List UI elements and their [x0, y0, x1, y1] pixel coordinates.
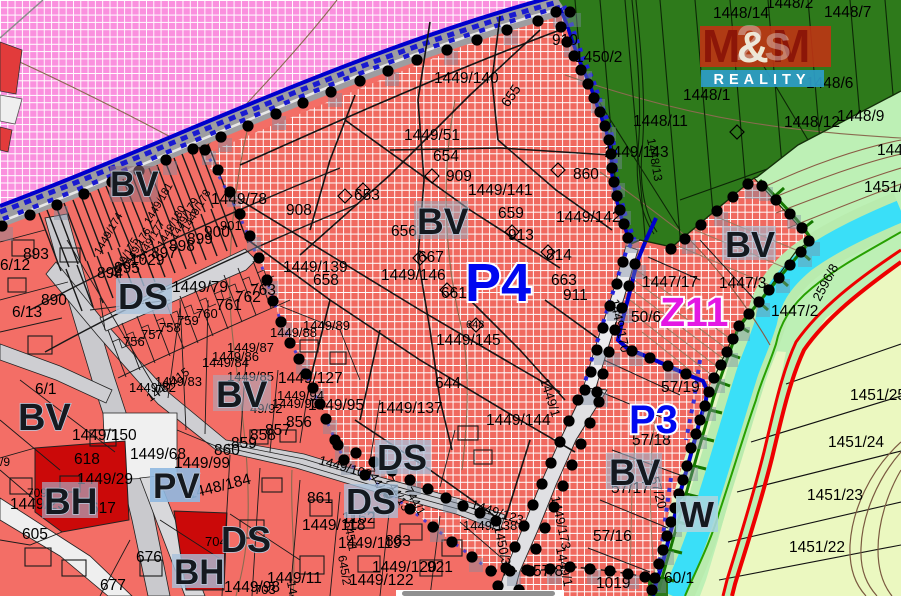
svg-text:BV: BV	[216, 374, 268, 415]
svg-text:6/13: 6/13	[12, 304, 42, 321]
svg-text:57/16: 57/16	[593, 528, 632, 545]
svg-text:756: 756	[123, 334, 145, 349]
svg-text:Z11: Z11	[660, 289, 728, 335]
svg-text:1450/2: 1450/2	[575, 49, 622, 66]
svg-text:1449/141: 1449/141	[468, 182, 533, 199]
svg-text:P3: P3	[629, 398, 678, 442]
svg-text:1449/145: 1449/145	[436, 332, 501, 349]
svg-text:BH: BH	[174, 553, 225, 592]
svg-text:1447: 1447	[877, 142, 901, 159]
svg-text:860: 860	[573, 166, 599, 183]
svg-text:656: 656	[391, 223, 417, 240]
svg-text:PV: PV	[153, 467, 200, 506]
svg-text:1448/2: 1448/2	[766, 0, 813, 12]
svg-text:1451/25: 1451/25	[850, 387, 901, 404]
svg-text:861: 861	[307, 490, 333, 507]
svg-text:760: 760	[196, 306, 218, 321]
svg-text:BV: BV	[110, 165, 159, 204]
svg-text:1449/122: 1449/122	[349, 572, 414, 589]
svg-text:658: 658	[313, 272, 339, 289]
svg-text:BH: BH	[44, 481, 97, 522]
svg-text:1449/140: 1449/140	[434, 70, 499, 87]
svg-text:1449/150: 1449/150	[72, 427, 137, 444]
svg-text:1019: 1019	[596, 575, 630, 592]
svg-text:667: 667	[418, 249, 444, 266]
svg-text:910: 910	[552, 32, 578, 49]
svg-text:6/1: 6/1	[35, 381, 57, 398]
svg-text:BV: BV	[18, 397, 71, 439]
svg-text:DS: DS	[377, 437, 427, 478]
svg-text:DS: DS	[346, 481, 396, 522]
svg-text:677: 677	[100, 577, 126, 594]
svg-text:653: 653	[354, 187, 380, 204]
svg-text:921: 921	[427, 559, 453, 576]
svg-text:M: M	[702, 20, 740, 72]
svg-text:1451/2: 1451/2	[864, 179, 901, 196]
svg-text:1449/138: 1449/138	[463, 518, 517, 533]
svg-text:P4: P4	[465, 253, 531, 313]
svg-text:1449/127: 1449/127	[278, 370, 343, 387]
svg-text:761: 761	[216, 297, 242, 314]
svg-text:REALITY: REALITY	[713, 72, 810, 88]
svg-text:676: 676	[136, 549, 162, 566]
svg-text:BV: BV	[725, 224, 775, 265]
svg-text:1451/22: 1451/22	[789, 539, 845, 556]
svg-text:911: 911	[563, 287, 588, 304]
svg-text:659: 659	[498, 205, 524, 222]
svg-text:1449/51: 1449/51	[404, 127, 460, 144]
svg-text:1449/87: 1449/87	[227, 340, 274, 355]
svg-text:DS: DS	[221, 519, 271, 560]
svg-text:654: 654	[433, 148, 459, 165]
svg-text:661: 661	[441, 285, 467, 302]
svg-text:1447/2: 1447/2	[771, 303, 818, 320]
svg-text:1449/137: 1449/137	[378, 400, 443, 417]
svg-text:1448/1: 1448/1	[683, 87, 730, 104]
svg-text:60/1: 60/1	[664, 570, 694, 587]
svg-text:1451/24: 1451/24	[828, 434, 884, 451]
svg-text:1449/89: 1449/89	[303, 318, 350, 333]
svg-text:57/19: 57/19	[661, 379, 700, 396]
svg-text:2s: 2s	[736, 15, 792, 71]
svg-text:913: 913	[508, 227, 534, 244]
svg-text:6/12: 6/12	[0, 257, 30, 274]
svg-text:1448/7: 1448/7	[824, 4, 871, 21]
svg-text:890: 890	[41, 292, 67, 309]
svg-text:856: 856	[286, 414, 312, 431]
svg-text:1451/23: 1451/23	[807, 487, 863, 504]
svg-text:618: 618	[74, 451, 100, 468]
svg-text:1448/11: 1448/11	[633, 113, 688, 130]
svg-text:901: 901	[220, 218, 242, 233]
svg-text:1449/79: 1449/79	[172, 279, 228, 296]
svg-text:1449/144: 1449/144	[486, 412, 551, 429]
svg-text:644: 644	[435, 375, 461, 392]
svg-text:DS: DS	[118, 276, 168, 317]
svg-text:605: 605	[22, 526, 48, 543]
svg-text:W: W	[680, 494, 714, 535]
svg-text:1449/146: 1449/146	[381, 267, 446, 284]
svg-text:50/6: 50/6	[631, 309, 661, 326]
svg-text:908: 908	[286, 202, 312, 219]
svg-text:/9: /9	[0, 455, 10, 469]
svg-text:1449/142: 1449/142	[556, 209, 621, 226]
svg-text:BV: BV	[609, 452, 661, 493]
svg-text:1448/9: 1448/9	[837, 108, 884, 125]
svg-text:1449/78: 1449/78	[211, 191, 267, 208]
svg-text:863: 863	[385, 533, 411, 550]
svg-text:1448/12: 1448/12	[784, 114, 840, 131]
svg-text:814: 814	[546, 247, 572, 264]
svg-text:BV: BV	[417, 201, 469, 242]
svg-text:648: 648	[466, 319, 484, 331]
svg-text:703: 703	[254, 582, 276, 596]
